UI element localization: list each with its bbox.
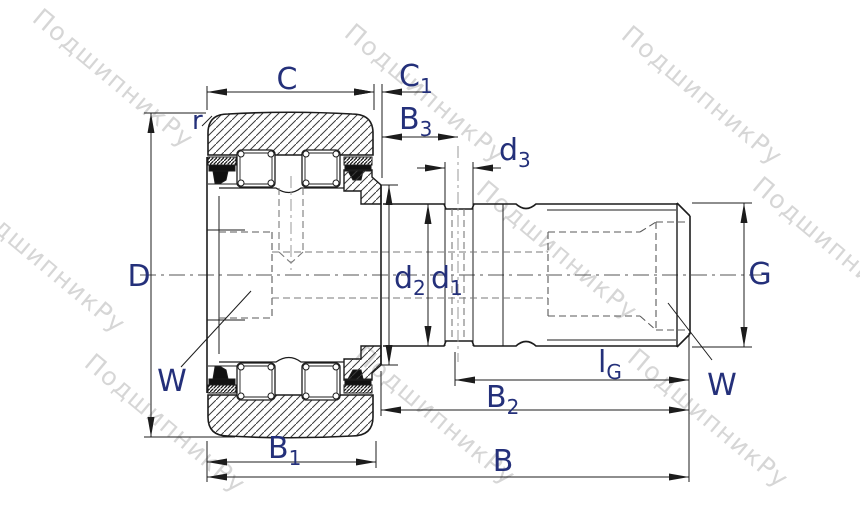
label-G: G — [748, 257, 771, 292]
stud-profile-bottom — [383, 341, 677, 346]
end-chamfer-bottom — [677, 334, 690, 347]
technical-drawing-page: ПодшипникРу ПодшипникРу ПодшипникРу Подш… — [0, 0, 860, 530]
label-W-right: W — [707, 368, 737, 403]
watermark-text: ПодшипникРу — [0, 188, 132, 339]
raceway-top — [219, 188, 344, 193]
watermark-text: ПодшипникРу — [622, 343, 795, 494]
raceway-bottom — [219, 358, 344, 363]
seal-lip — [213, 171, 228, 183]
label-B2: B2 — [486, 380, 519, 419]
label-D: D — [127, 259, 150, 294]
label-d2: d2 — [394, 261, 426, 300]
seal-shield-top-right — [344, 157, 372, 165]
stud-profile-top — [383, 204, 677, 209]
seal-shield-bottom-left — [208, 385, 236, 393]
bearing-cross-section-drawing: ПодшипникРу ПодшипникРу ПодшипникРу Подш… — [0, 0, 860, 530]
watermark-text: ПодшипникРу — [27, 3, 200, 154]
label-d3: d3 — [499, 133, 531, 172]
w-left-leader — [181, 291, 251, 367]
outer-ring-section-top — [208, 112, 373, 155]
label-C: C — [277, 62, 298, 97]
label-W-left: W — [157, 364, 187, 399]
end-chamfer-top — [677, 203, 690, 216]
seal-lip-band — [209, 379, 235, 385]
seal-lip-band — [209, 165, 235, 171]
label-C1: C1 — [399, 59, 433, 98]
outer-ring-section-bottom — [208, 395, 373, 438]
seal-shield-bottom-right — [344, 385, 372, 393]
seal-lip — [213, 367, 228, 379]
seal-shield-top-left — [208, 157, 236, 165]
watermark-text: ПодшипникРу — [747, 171, 860, 322]
label-r: r — [192, 106, 203, 136]
label-B: B — [493, 444, 514, 479]
watermark-text: ПодшипникРу — [471, 175, 644, 326]
watermark-text: ПодшипникРу — [616, 20, 789, 171]
stud-collar-top — [344, 170, 381, 204]
label-lG: lG — [598, 345, 622, 384]
